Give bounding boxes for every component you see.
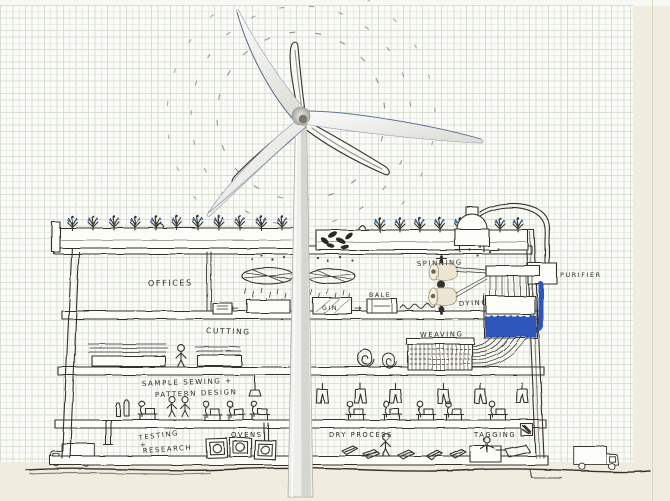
turbine-nose xyxy=(299,115,307,123)
label-dying: DYING xyxy=(459,298,489,308)
label-tagging: TAGGING xyxy=(473,431,516,439)
sewing-station xyxy=(489,401,508,420)
label-dry-process: DRY PROCESS xyxy=(329,431,393,439)
walking-worker xyxy=(181,397,190,417)
dyed-threads xyxy=(472,336,528,367)
label-gin: GIN xyxy=(322,305,338,312)
sketch-canvas: OFFICES CUTTING GIN BALE SPINNING DYING … xyxy=(0,0,670,501)
label-sample-sewing-1: SAMPLE SEWING + xyxy=(142,377,233,388)
turbine-blades xyxy=(207,10,483,217)
label-cutting: CUTTING xyxy=(206,326,251,337)
factory-sketch: OFFICES CUTTING GIN BALE SPINNING DYING … xyxy=(0,0,670,501)
sewing-station xyxy=(139,401,158,420)
cotton-intake-machines xyxy=(213,300,290,314)
fabric-roll-2 xyxy=(383,354,397,369)
fabric-stacks xyxy=(88,344,241,366)
hanging-garments xyxy=(317,383,529,403)
oven xyxy=(206,438,228,458)
arrow-left-icon: ← xyxy=(231,304,240,314)
fabric-roll-1 xyxy=(358,349,374,366)
delivery-truck-right xyxy=(574,447,618,470)
spun-threads xyxy=(456,267,487,297)
label-purifier: PURIFIER xyxy=(560,271,602,279)
cutting-worker xyxy=(176,345,186,367)
sewing-station xyxy=(445,401,464,420)
sewing-station xyxy=(227,401,246,420)
ground-line xyxy=(26,468,650,478)
label-weaving: WEAVING xyxy=(420,330,464,339)
sewing-station xyxy=(347,401,366,420)
sewing-station xyxy=(203,401,222,420)
sewing-station xyxy=(251,401,270,420)
oven xyxy=(254,440,276,460)
label-ovens: OVENS xyxy=(231,431,263,439)
oven xyxy=(230,438,251,457)
bale-box xyxy=(367,299,397,313)
walking-worker xyxy=(168,397,177,417)
sample-bottles xyxy=(116,400,129,416)
label-sample-sewing-2: PATTERN DESIGN xyxy=(155,388,238,399)
sewing-station xyxy=(383,401,402,420)
scribbled-word xyxy=(400,304,435,310)
loom xyxy=(406,338,474,370)
label-bale: BALE xyxy=(369,292,391,299)
arrow-right-icon: → xyxy=(354,304,363,314)
hanging-lamp xyxy=(249,376,261,396)
label-spinning: SPINNING xyxy=(417,258,463,268)
label-offices: OFFICES xyxy=(148,278,193,288)
thread-rail xyxy=(486,266,540,296)
label-research: RESEARCH xyxy=(143,444,193,455)
sewing-station xyxy=(417,401,436,420)
